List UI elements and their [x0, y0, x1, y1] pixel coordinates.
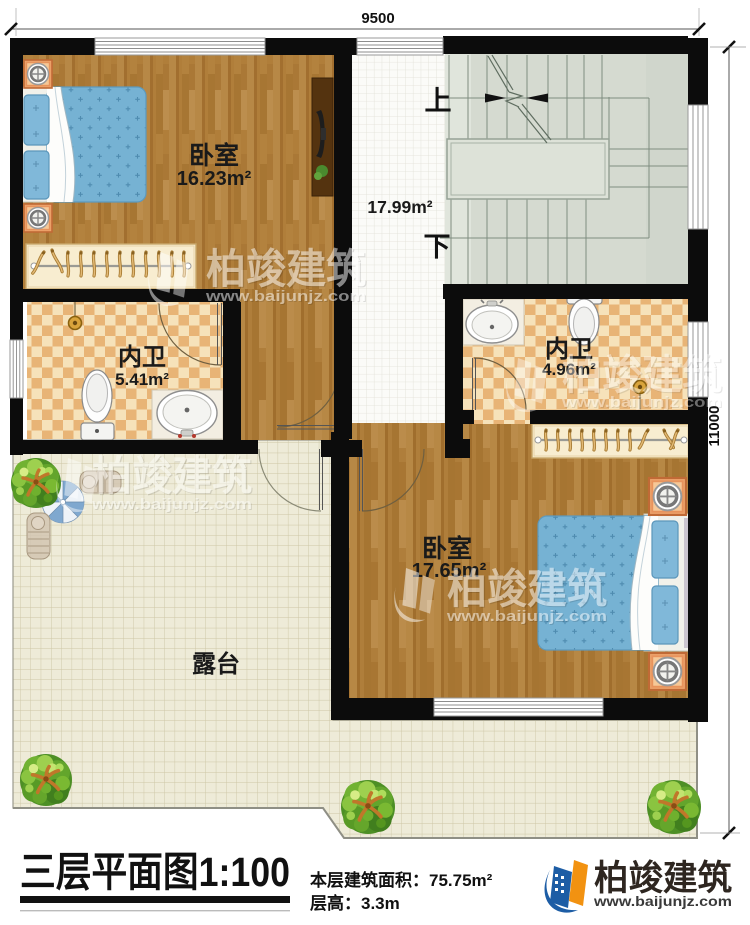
svg-text:16.23m²: 16.23m² — [177, 168, 252, 190]
svg-text:柏竣建筑: 柏竣建筑 — [562, 352, 722, 398]
svg-text:柏竣建筑: 柏竣建筑 — [594, 858, 732, 898]
svg-text:17.99m²: 17.99m² — [367, 197, 432, 217]
svg-text:上: 上 — [425, 86, 452, 116]
svg-text:本层建筑面积：75.75m²: 本层建筑面积：75.75m² — [310, 870, 493, 890]
svg-text:卧室: 卧室 — [189, 141, 239, 170]
svg-text:柏竣建筑: 柏竣建筑 — [92, 453, 252, 499]
svg-text:层高：3.3m: 层高：3.3m — [310, 893, 400, 913]
svg-text:下: 下 — [424, 232, 451, 262]
svg-text:www.baijunjz.com: www.baijunjz.com — [561, 394, 722, 411]
svg-text:柏竣建筑: 柏竣建筑 — [206, 246, 366, 292]
svg-text:三层平面图1:100: 三层平面图1:100 — [20, 849, 290, 895]
svg-text:内卫: 内卫 — [118, 344, 166, 371]
svg-text:www.baijunjz.com: www.baijunjz.com — [205, 288, 366, 305]
svg-text:露台: 露台 — [192, 650, 240, 678]
svg-text:柏竣建筑: 柏竣建筑 — [447, 566, 607, 612]
svg-text:www.baijunjz.com: www.baijunjz.com — [446, 608, 607, 625]
svg-text:11000: 11000 — [706, 406, 723, 447]
svg-text:5.41m²: 5.41m² — [115, 370, 169, 389]
svg-text:www.baijunjz.com: www.baijunjz.com — [593, 893, 732, 909]
svg-text:卧室: 卧室 — [422, 534, 472, 563]
svg-text:9500: 9500 — [361, 10, 394, 27]
svg-text:www.baijunjz.com: www.baijunjz.com — [91, 496, 252, 513]
